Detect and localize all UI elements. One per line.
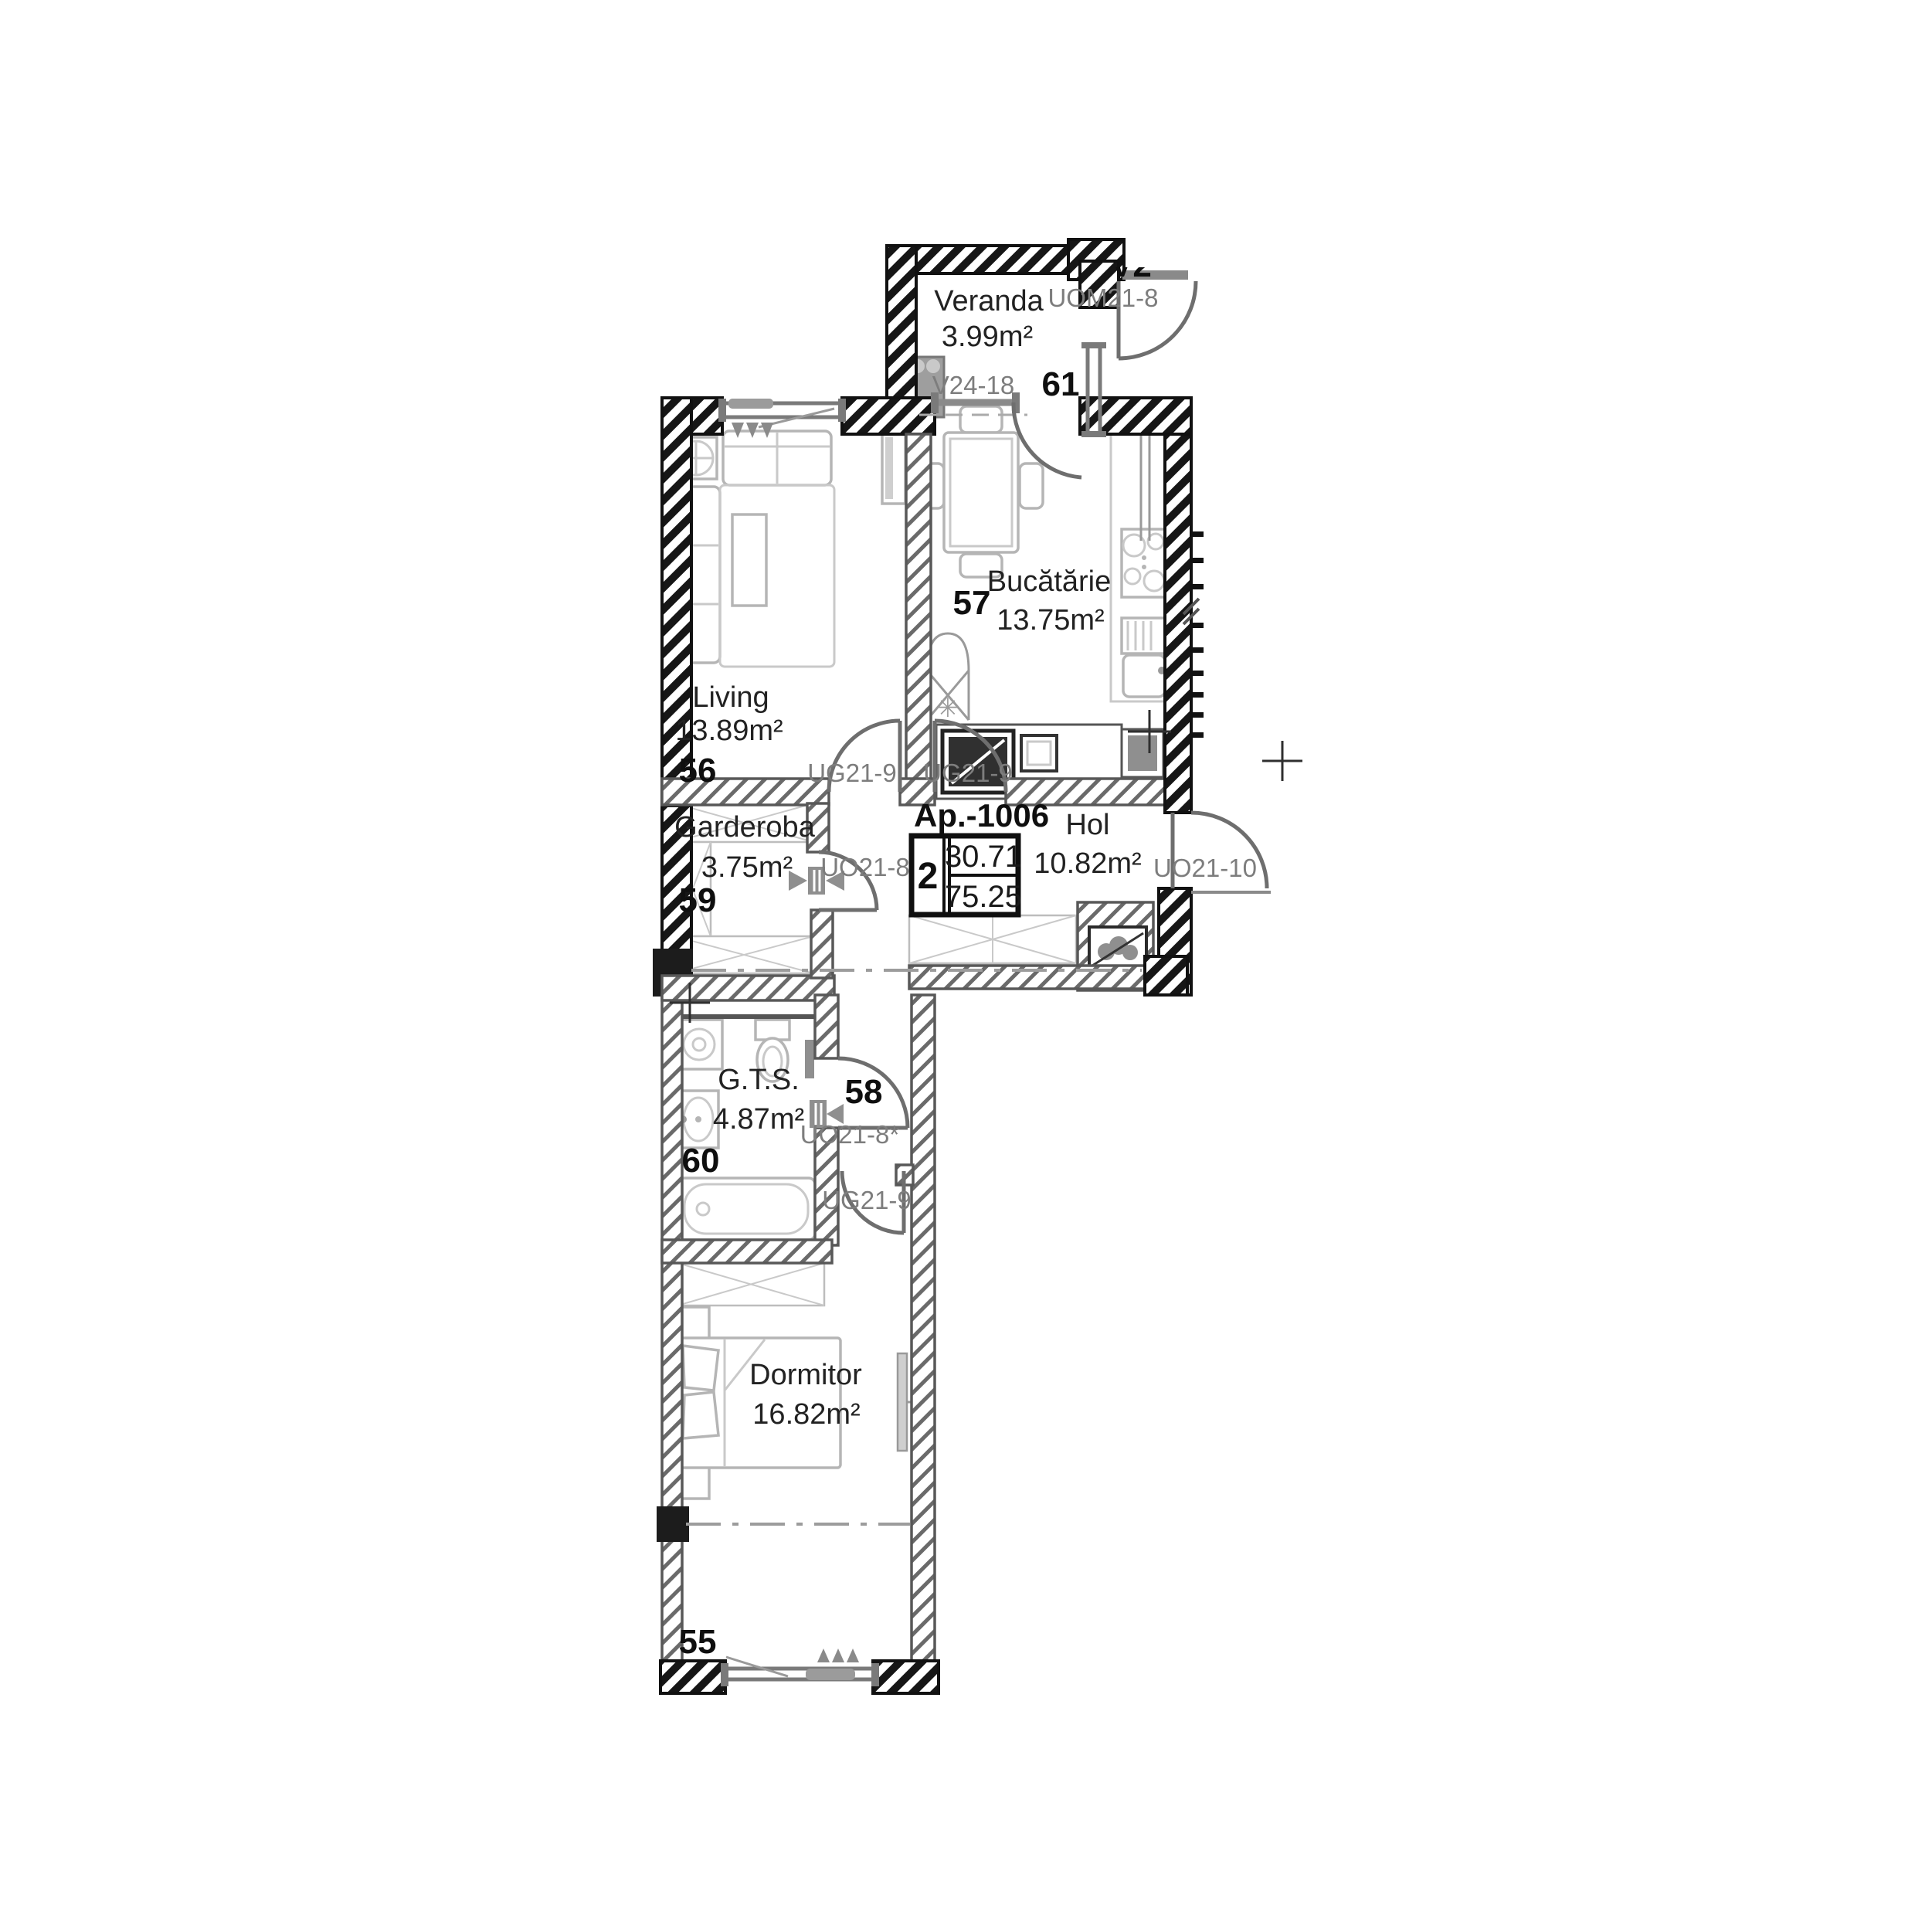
apartment-rooms-badge: 2 [918,856,939,897]
opening-label-ug21-9-living: UG21-9 [807,759,897,787]
dormitor-window [721,1648,879,1686]
wall-ticks [1191,531,1204,738]
room-label-living-area: 13.89m² [675,715,783,747]
apartment-area-useful: 30.71 [945,840,1022,874]
wall-band-bottom-left [662,976,834,1000]
floor-plan-page: ✳ [0,0,1932,1932]
room-number-bucatarie: 57 [953,584,991,622]
room-number-living: 56 [679,752,717,789]
room-label-dormitor-area: 16.82m² [752,1398,860,1431]
dormitor-tv [898,1353,912,1451]
room-label-bucatarie-area: 13.75m² [997,604,1104,637]
opening-label-uo21-8-gts: UO21-8* [800,1120,900,1149]
wall-gts-right-up [815,995,838,1058]
living-tv-cabinet [882,433,905,504]
wall-gts-bottom [662,1240,832,1263]
apartment-area-total: 75.25 [945,880,1022,914]
opening-label-ug21-9-kitchen: UG21-9 [923,759,1013,787]
room-label-gts-area: 4.87m² [713,1103,804,1136]
room-number-gts: 60 [682,1142,720,1180]
kitchen-gas-pipes [1141,434,1149,541]
room-label-dormitor-name: Dormitor [749,1359,862,1391]
hol-closet [909,915,1076,963]
wall-corner-black [1145,956,1187,995]
room-label-living-name: Living [692,681,769,714]
wall-garderoba-right-down [811,910,833,978]
room-label-garderoba-name: Garderoba [674,811,816,844]
room-number-hol: 58 [845,1073,883,1111]
living-coffee-table [732,514,766,606]
wall-left-lower [662,995,682,1693]
opening-label-ug21-9-dormitor: UG21-9 [822,1186,912,1214]
room-label-gts-name: G.T.S. [718,1064,800,1096]
room-label-hol-name: Hol [1065,809,1109,841]
floor-plan-drawing: ✳ [0,0,1932,1932]
kitchen-hob [1122,529,1166,597]
wall-kitchen-right [1165,434,1191,813]
room-label-garderoba-area: 3.75m² [701,851,793,884]
room-label-veranda-area: 3.99m² [942,321,1033,353]
wall-divider-living-kitchen [906,434,931,780]
boiler-symbol: ✳ [937,694,959,723]
opening-label-uom21-8: UOM21-8 [1047,284,1158,312]
apartment-title: Ap.-1006 [914,797,1049,834]
kitchen-sink [1122,618,1166,697]
wall-left-joint [657,1506,689,1542]
axis-cross-entrance [1262,741,1302,781]
wall-top-c [1080,398,1191,434]
dormitor-closet [677,1263,824,1306]
kitchen-dining-set [921,406,1043,577]
room-number-garderoba: 59 [679,881,717,919]
opening-label-v24-18: V24-18 [932,371,1014,399]
wall-veranda-left [887,246,916,409]
gts-bathtub [677,1178,815,1240]
room-label-veranda-name: Veranda [934,285,1044,317]
wall-bottom-left [660,1661,725,1693]
room-number-veranda: 61 [1042,365,1080,403]
wall-lower-right [912,995,935,1692]
gts-wall-panel [805,1040,814,1078]
room-label-bucatarie-name: Bucătărie [987,565,1112,598]
room-label-hol-area: 10.82m² [1034,847,1141,880]
opening-label-uo21-8-garderoba: UO21-8 [820,853,910,881]
kitchen-boiler: ✳ [927,633,969,723]
apartment-info: Ap.-1006 2 30.71 75.25 [912,797,1049,915]
room-number-dormitor: 55 [679,1623,717,1661]
wall-bottom-right [873,1661,939,1693]
opening-label-uo21-10: UO21-10 [1153,854,1257,882]
